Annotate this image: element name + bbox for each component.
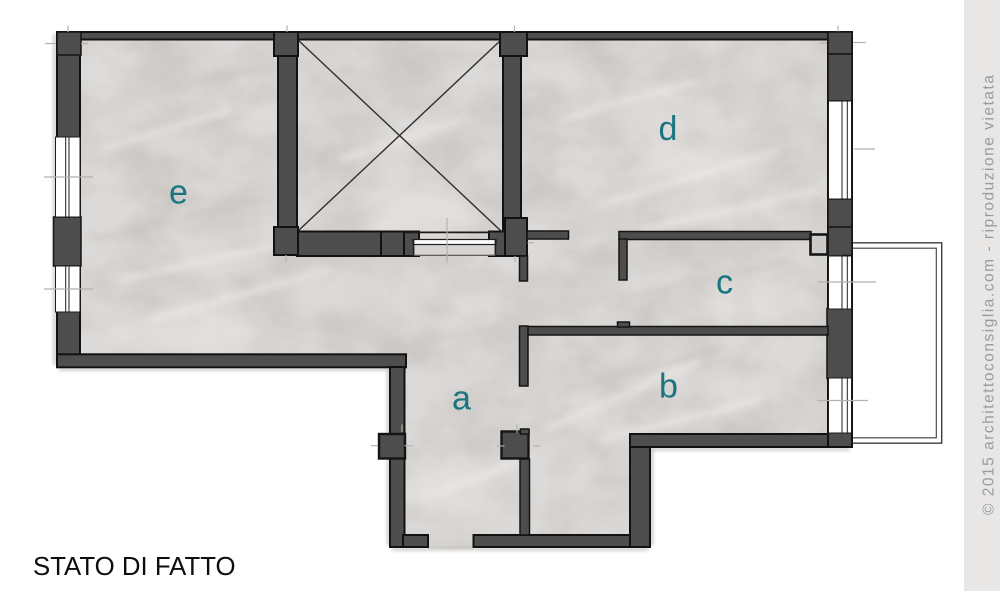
svg-text:© 2015 architettoconsiglia.com: © 2015 architettoconsiglia.com - riprodu… (981, 75, 998, 515)
svg-text:STATO DI FATTO: STATO DI FATTO (33, 553, 236, 581)
svg-text:d: d (659, 110, 678, 148)
svg-text:c: c (716, 264, 733, 302)
svg-text:e: e (169, 174, 188, 212)
svg-text:b: b (659, 368, 678, 406)
svg-text:a: a (452, 380, 471, 418)
